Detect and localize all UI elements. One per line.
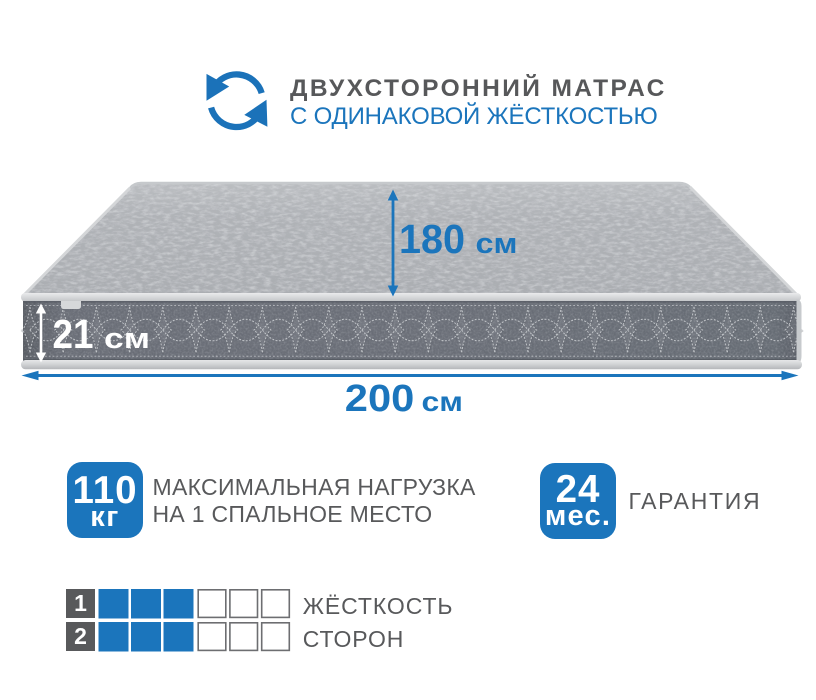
svg-text:2: 2 xyxy=(74,623,87,649)
svg-text:см: см xyxy=(476,228,518,260)
svg-text:ЖЁСТКОСТЬ: ЖЁСТКОСТЬ xyxy=(303,593,454,619)
svg-text:200: 200 xyxy=(345,378,415,420)
svg-text:180: 180 xyxy=(399,216,465,262)
svg-text:1: 1 xyxy=(74,590,87,616)
svg-text:см: см xyxy=(104,323,150,355)
svg-text:СТОРОН: СТОРОН xyxy=(303,626,405,652)
svg-text:21: 21 xyxy=(53,311,94,357)
svg-text:см: см xyxy=(422,386,464,417)
